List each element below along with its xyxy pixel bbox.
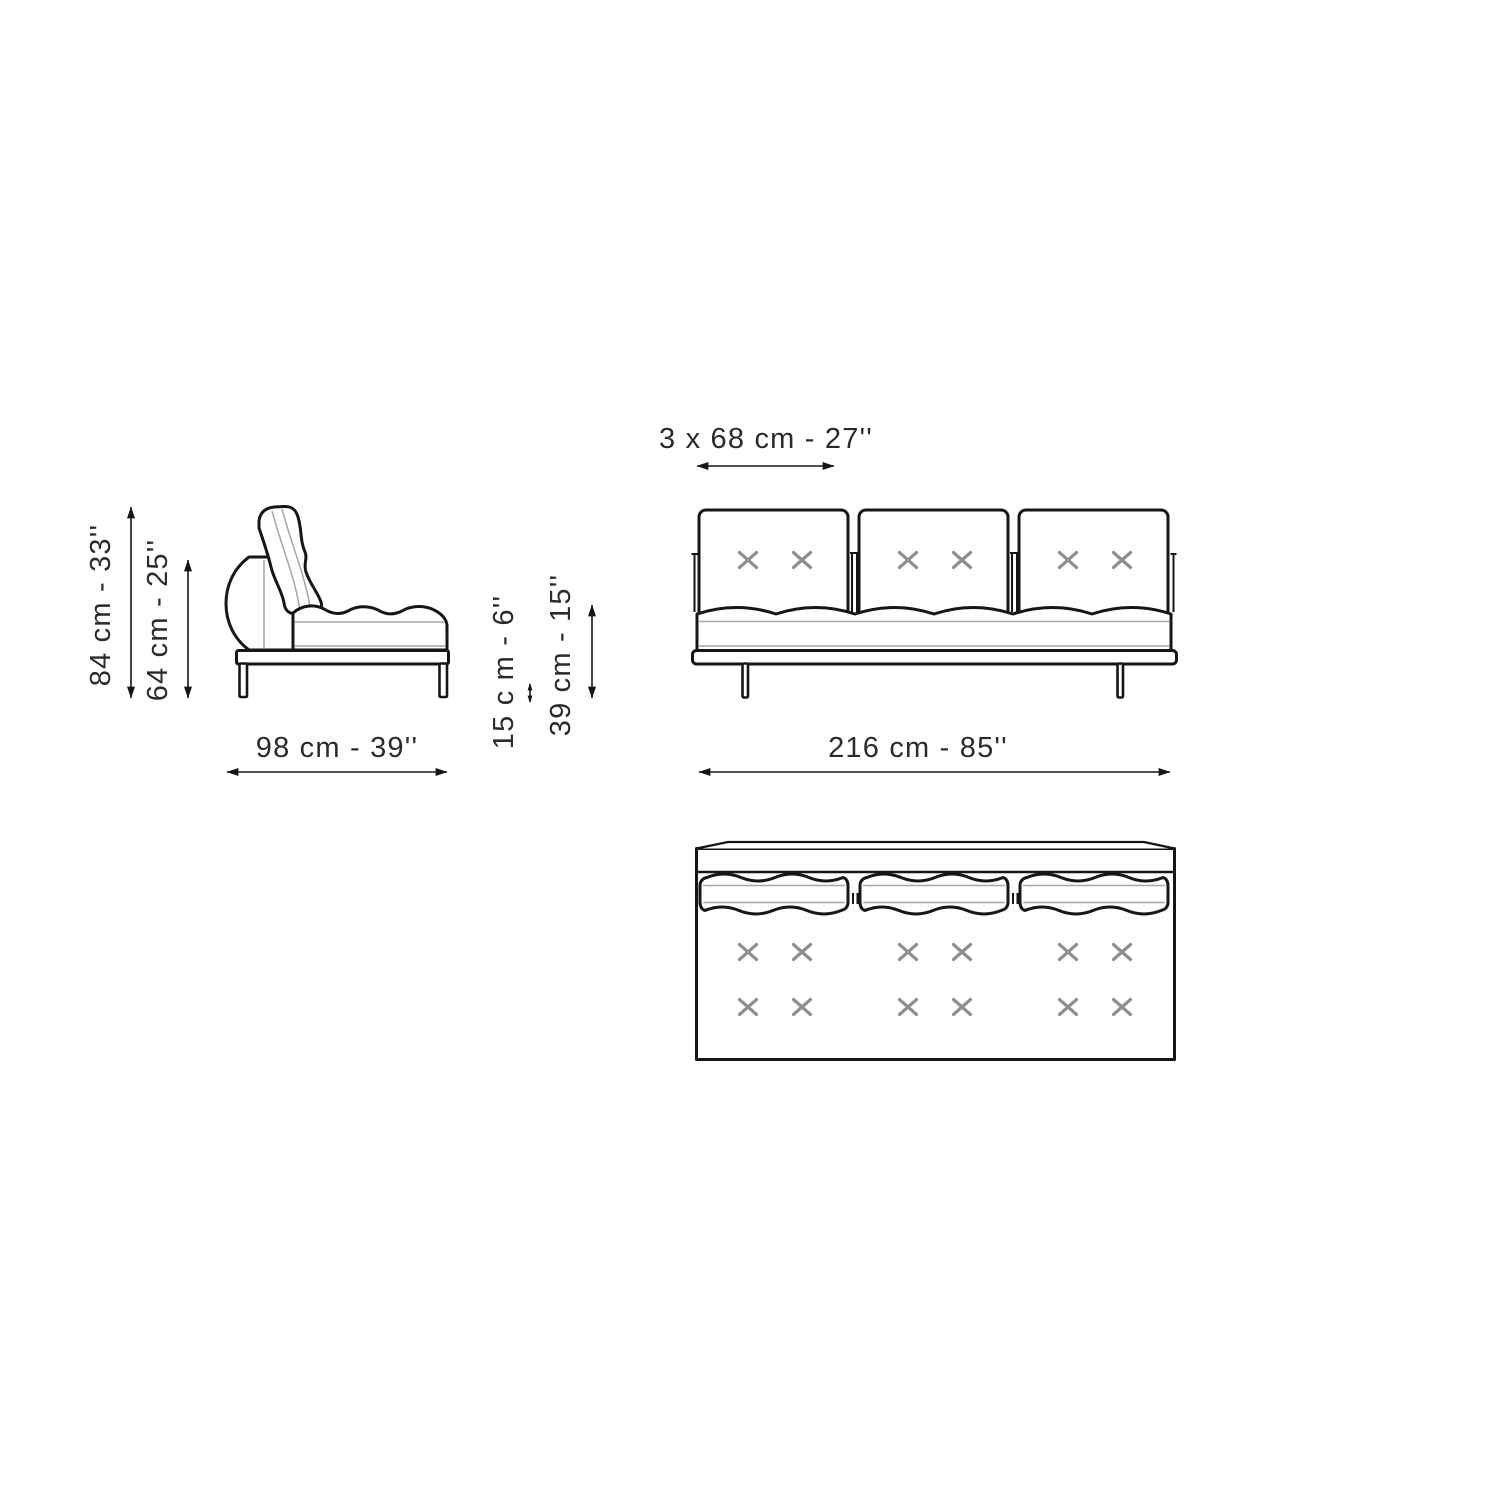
sofa-dimension-diagram: 84 cm - 33'' 64 cm - 25'' 98 cm - 39'' 1… xyxy=(0,0,1500,1500)
base-height-label: 15 c m - 6'' xyxy=(488,595,520,749)
front-leg-left xyxy=(743,664,749,698)
front-back-cushion-2 xyxy=(859,510,1008,622)
side-leg-right xyxy=(440,664,448,698)
top-seat-cushion-3 xyxy=(1020,874,1168,914)
front-view xyxy=(692,510,1177,698)
top-seat-cushion-1 xyxy=(700,874,848,914)
top-seat-cushion-2 xyxy=(860,874,1008,914)
depth-label: 98 cm - 39'' xyxy=(256,732,418,764)
seat-module-width-label: 3 x 68 cm - 27'' xyxy=(659,423,873,455)
seat-height-label: 39 cm - 15'' xyxy=(545,574,577,736)
diagram-svg: 84 cm - 33'' 64 cm - 25'' 98 cm - 39'' 1… xyxy=(0,0,1500,1500)
front-back-cushion-3 xyxy=(1019,510,1168,622)
top-backrest-bevel xyxy=(697,842,1175,849)
side-base-rail xyxy=(237,651,449,665)
back-height-label: 64 cm - 25'' xyxy=(142,539,174,701)
overall-width-label: 216 cm - 85'' xyxy=(828,732,1008,764)
front-leg-right xyxy=(1118,664,1124,698)
top-view xyxy=(697,842,1175,1060)
side-leg-left xyxy=(240,664,248,698)
front-base-rail xyxy=(693,651,1177,665)
front-back-cushion-1 xyxy=(699,510,848,622)
front-seat xyxy=(697,608,1171,652)
side-view xyxy=(226,506,449,697)
overall-height-label: 84 cm - 33'' xyxy=(85,524,117,686)
side-seat-cushion xyxy=(293,606,447,650)
